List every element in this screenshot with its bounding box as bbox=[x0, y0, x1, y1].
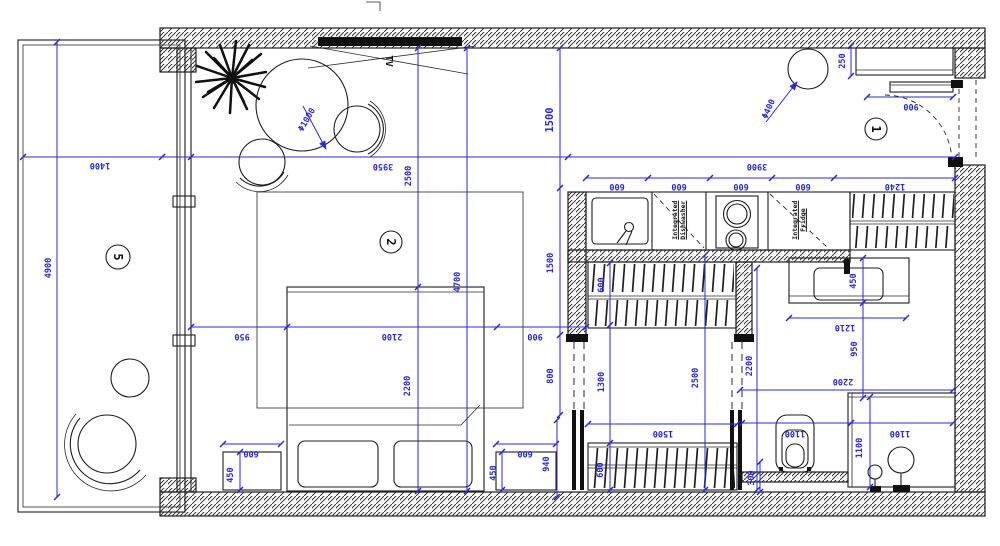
dim-kitchen-unit-2: 600 bbox=[671, 181, 686, 191]
window-mullion-upper bbox=[173, 196, 195, 207]
dim-living-depth-a: 2500 bbox=[404, 166, 414, 186]
dim-bed-side-left: 950 bbox=[234, 331, 249, 341]
floor-plan-drawing: 1400 4900 3950 3900 1500 2500 4700 1500 … bbox=[0, 0, 1000, 546]
dim-kitchen-unit-1: 600 bbox=[609, 181, 624, 191]
dim-dressing-depth: 2500 bbox=[691, 368, 701, 388]
dim-passage: 800 bbox=[546, 368, 556, 383]
balcony-side-table bbox=[111, 359, 149, 397]
bed bbox=[287, 287, 484, 491]
dim-shower-depth: 1100 bbox=[855, 438, 865, 458]
wardrobe-entry bbox=[850, 192, 955, 250]
lounge-chair-back bbox=[70, 418, 140, 484]
bottom-wall bbox=[160, 492, 985, 516]
dim-rear-gap: 300 bbox=[747, 470, 757, 485]
dim-vanity-clearance: 950 bbox=[850, 341, 860, 356]
toilet bbox=[776, 415, 814, 472]
wall-end-cap-right bbox=[734, 334, 754, 342]
dim-balcony-width: 1400 bbox=[90, 160, 110, 170]
dim-right-zone-width: 3900 bbox=[747, 161, 767, 171]
dim-bed-width: 2100 bbox=[382, 331, 402, 341]
dim-nightstand-right-depth: 450 bbox=[489, 465, 499, 480]
dim-room-depth-total: 4700 bbox=[453, 272, 463, 292]
rug bbox=[257, 192, 523, 408]
dim-shower-width: 1100 bbox=[890, 428, 910, 438]
lounge-chair-back-outer bbox=[65, 414, 146, 491]
dim-nightstand-left-depth: 450 bbox=[226, 467, 236, 482]
floor-plan-canvas: 1400 4900 3950 3900 1500 2500 4700 1500 … bbox=[0, 0, 1000, 546]
dim-mid-depth: 1500 bbox=[546, 253, 556, 273]
fridge-label: Integrated Fridge bbox=[791, 193, 807, 247]
wall-end-cap-left bbox=[566, 334, 588, 342]
dimension-lines bbox=[23, 42, 955, 497]
room-label-balcony: 5 bbox=[111, 253, 125, 260]
dim-vanity-width: 1210 bbox=[835, 322, 855, 332]
dim-bed-length: 2200 bbox=[403, 376, 413, 396]
window-mullion-lower bbox=[173, 335, 195, 346]
room-label-entry: 1 bbox=[869, 125, 883, 132]
dishwasher-label: Integrated Dishwasher bbox=[671, 193, 687, 247]
dim-kitchen-unit-4: 600 bbox=[795, 181, 810, 191]
dimension-texts: 1400 4900 3950 3900 1500 2500 4700 1500 … bbox=[44, 53, 919, 485]
room-label-living: 2 bbox=[384, 238, 398, 245]
dim-kitchen-unit-3: 600 bbox=[733, 181, 748, 191]
door-hinge-mark bbox=[948, 157, 963, 167]
faucet-icon bbox=[617, 223, 634, 246]
kitchen bbox=[586, 192, 955, 250]
kitchen-back-wall bbox=[568, 250, 850, 262]
dim-bath-depth: 2200 bbox=[745, 356, 755, 376]
leader-bracket bbox=[366, 2, 380, 11]
tv-panel bbox=[318, 37, 462, 46]
dim-entry-depth: 1500 bbox=[544, 107, 556, 132]
dim-vanity-depth: 450 bbox=[849, 273, 859, 288]
dim-closet-passage: 1300 bbox=[597, 372, 607, 392]
closet-pier-wall bbox=[736, 262, 752, 340]
entry-shelf bbox=[890, 82, 953, 92]
dim-nightstand-right-width: 600 bbox=[517, 448, 532, 458]
dim-light-diameter: Φ400 bbox=[760, 98, 777, 121]
dim-closet-depth: 600 bbox=[597, 277, 607, 292]
dim-entry-cabinet-depth: 250 bbox=[838, 53, 848, 68]
right-wall-lower bbox=[955, 165, 985, 492]
lounge-chair-seat bbox=[78, 415, 136, 473]
dining-chair-left bbox=[236, 139, 288, 192]
pillow-right bbox=[394, 441, 472, 487]
dim-table-diameter: Φ1000 bbox=[297, 106, 318, 133]
kitchen-counter bbox=[586, 192, 850, 250]
dim-wardrobe-depth: 600 bbox=[596, 462, 606, 477]
tv-label: TV bbox=[383, 55, 394, 67]
window-wall bbox=[173, 48, 195, 492]
room-label-markers: 1 2 5 TV bbox=[106, 55, 887, 269]
mid-partition-wall bbox=[568, 192, 586, 340]
dim-kitchen-unit-5: 1240 bbox=[885, 181, 905, 191]
pillow-left bbox=[298, 441, 378, 487]
sliding-door-left bbox=[572, 342, 584, 490]
cooktop bbox=[716, 196, 758, 250]
entry-cabinet bbox=[856, 48, 953, 75]
dim-living-width: 3950 bbox=[373, 161, 393, 171]
shower-head-icon bbox=[888, 447, 914, 473]
living-area bbox=[196, 2, 556, 491]
dim-balcony-length: 4900 bbox=[44, 258, 54, 278]
toilet-back-ledge bbox=[742, 472, 848, 482]
dim-bed-side-right: 900 bbox=[527, 331, 542, 341]
dim-entry-shelf-width: 900 bbox=[903, 101, 918, 111]
top-wall bbox=[160, 28, 985, 48]
plant-icon bbox=[196, 41, 266, 113]
dining-table bbox=[256, 59, 348, 151]
right-wall-upper bbox=[955, 48, 985, 78]
dim-wardrobe-width: 1500 bbox=[653, 428, 673, 438]
dim-toilet-zone-width: 1100 bbox=[785, 428, 805, 438]
dim-bath-width: 2200 bbox=[833, 376, 853, 386]
dim-nightstand-left-width: 600 bbox=[243, 448, 258, 458]
bathroom bbox=[776, 258, 955, 492]
ceiling-light bbox=[788, 49, 828, 89]
entry-area bbox=[788, 48, 976, 167]
kitchen-sink bbox=[592, 198, 648, 244]
dim-nightstand-right-offset: 940 bbox=[542, 456, 552, 471]
door-frame-mark-top bbox=[951, 80, 963, 88]
